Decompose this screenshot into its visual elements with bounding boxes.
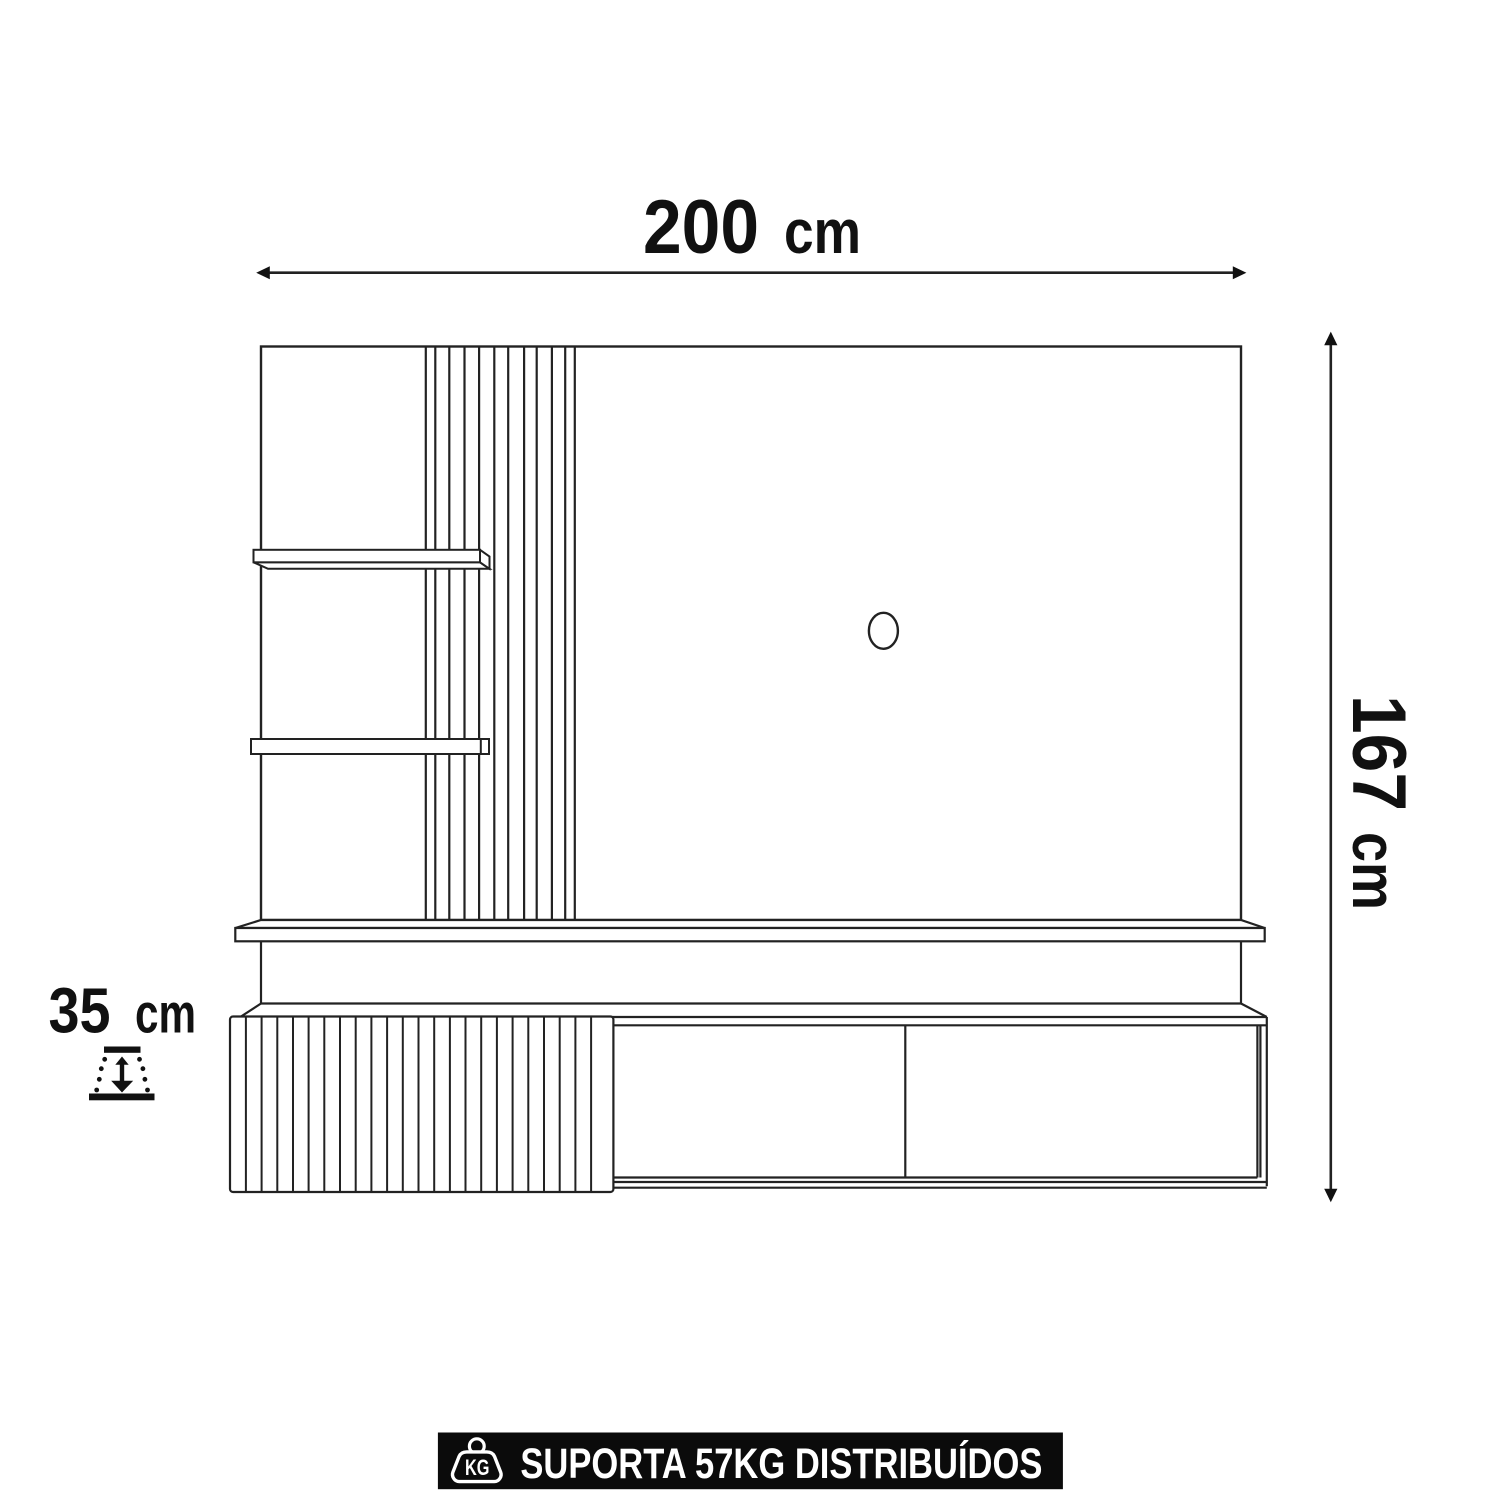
svg-text:cm: cm <box>1339 832 1408 910</box>
svg-text:cm: cm <box>784 198 861 267</box>
svg-text:cm: cm <box>135 982 196 1045</box>
svg-text:SUPORTA 57KG DISTRIBUÍDOS: SUPORTA 57KG DISTRIBUÍDOS <box>520 1440 1042 1488</box>
svg-text:200: 200 <box>643 185 759 270</box>
svg-text:35: 35 <box>49 975 111 1047</box>
svg-text:KG: KG <box>465 1455 490 1480</box>
svg-text:167: 167 <box>1336 695 1421 811</box>
